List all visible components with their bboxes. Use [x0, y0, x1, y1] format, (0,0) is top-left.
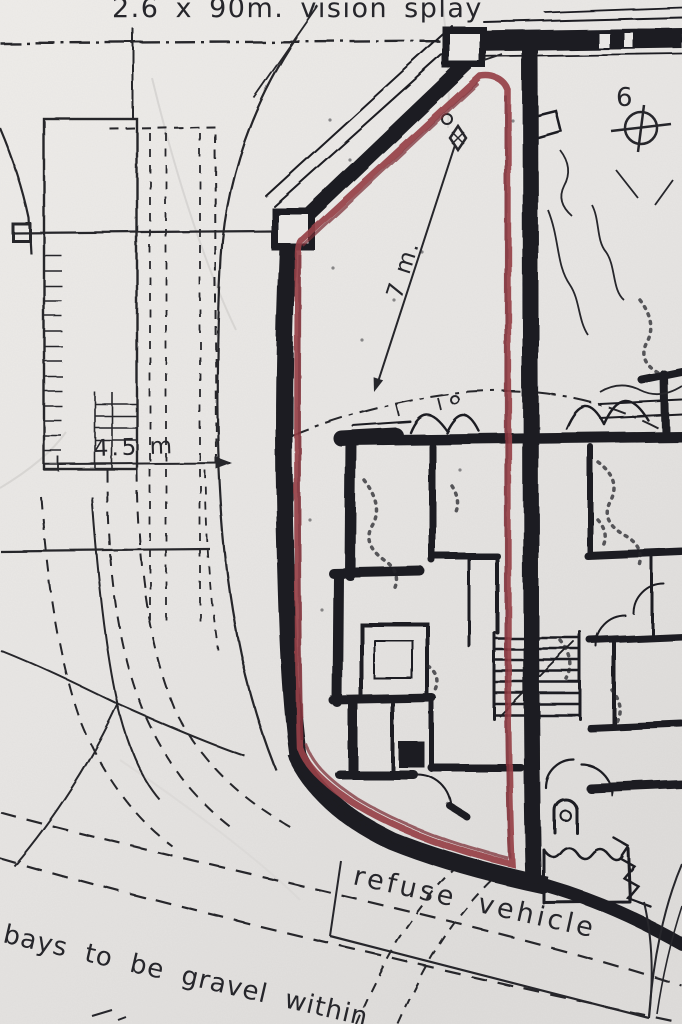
paper-grain — [0, 0, 682, 1024]
vision-splay-note: 2.6 x 90m. vision splay — [112, 0, 483, 24]
plot-number-label: 6 — [616, 83, 633, 113]
gate-post-upper — [446, 30, 483, 65]
top-boundary-wall — [470, 38, 682, 41]
dimension-line-4-5m — [58, 463, 230, 464]
dim-4-5m-label: 4.5 m — [93, 433, 175, 462]
site-plan-drawing: 2.6 x 90m. vision splay 6 7 m. 4.5 m ref… — [0, 0, 682, 1024]
scanned-site-plan-page: 2.6 x 90m. vision splay 6 7 m. 4.5 m ref… — [0, 0, 682, 1024]
